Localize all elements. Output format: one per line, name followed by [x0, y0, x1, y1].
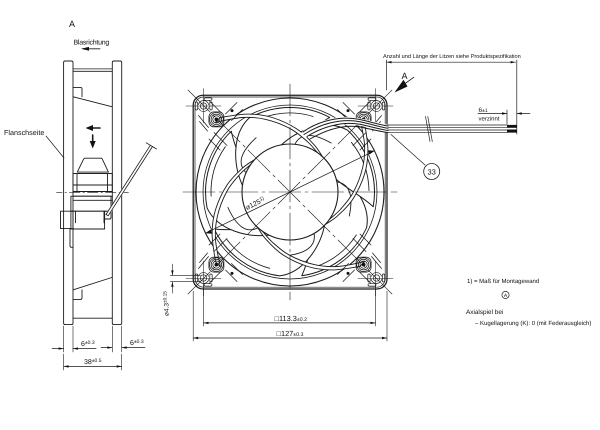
svg-text:1) = Maß für Montagewand: 1) = Maß für Montagewand	[467, 278, 539, 285]
svg-text:38±0.5: 38±0.5	[84, 358, 102, 366]
svg-text:A: A	[69, 19, 75, 29]
svg-text:⌀4.3±0.15: ⌀4.3±0.15	[163, 291, 171, 316]
svg-text:□113.3±0.2: □113.3±0.2	[275, 314, 308, 323]
svg-text:Flanschseite: Flanschseite	[4, 128, 44, 137]
svg-text:33: 33	[428, 167, 436, 176]
svg-text:verzinnt: verzinnt	[479, 115, 500, 122]
svg-text:□127±0.3: □127±0.3	[277, 329, 304, 338]
svg-text:A: A	[402, 71, 408, 81]
svg-text:– Kugellagerung (K): 0 (mit F: – Kugellagerung (K): 0 (mit Federausglei…	[475, 320, 591, 327]
svg-text:6±0.3: 6±0.3	[130, 339, 144, 347]
svg-text:Anzahl und Länge der Litzen si: Anzahl und Länge der Litzen siehe Produk…	[383, 53, 521, 60]
svg-text:Blasrichtung: Blasrichtung	[74, 39, 110, 47]
svg-text:Axialspiel bei: Axialspiel bei	[466, 309, 503, 316]
svg-text:6±0.3: 6±0.3	[81, 340, 95, 348]
svg-text:6±1: 6±1	[479, 107, 488, 114]
